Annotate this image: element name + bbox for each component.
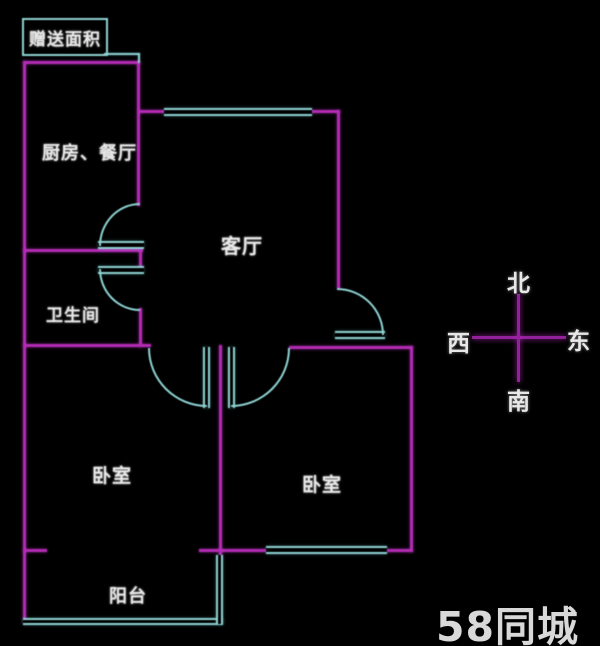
site-watermark-58tongcheng: 58同城: [436, 593, 579, 646]
wall-kitchen-top: [23, 61, 140, 64]
floorplan-drawing: 赠送面积 厨房、餐厅 客厅 卫生间 卧室 卧室 阳台: [0, 0, 600, 646]
window-living-room: [164, 108, 312, 116]
door-arc-bathroom: [99, 269, 140, 311]
wall-bedroom-left-bottom-stub-b: [199, 549, 222, 552]
wall-bath-right-lower: [139, 308, 142, 347]
balcony-outer-bottom: [23, 618, 223, 625]
door-arc-kitchen: [99, 203, 140, 246]
wall-bedroom-right-outer: [410, 346, 413, 552]
compass-axis-vertical: [517, 294, 520, 382]
compass-north-label: 北: [507, 264, 530, 298]
wall-center-partition: [219, 345, 222, 561]
room-label-living-room: 客厅: [221, 230, 263, 259]
room-label-balcony: 阳台: [109, 582, 147, 608]
wall-bath-bottom: [23, 344, 151, 347]
compass-east-label: 东: [567, 322, 590, 356]
wall-living-right: [337, 110, 340, 289]
door-arc-bedroom-left: [148, 348, 207, 407]
room-label-bedroom-right: 卧室: [302, 470, 342, 497]
wall-left-outer: [23, 61, 26, 623]
wall-kitchen-bath-divider: [23, 249, 143, 252]
bonus-area-label: 赠送面积: [29, 25, 101, 50]
wall-hall-bottom: [289, 346, 413, 349]
door-arc-bedroom-right: [231, 348, 290, 407]
bonus-box-connector-v: [138, 53, 140, 63]
room-label-kitchen-dining: 厨房、餐厅: [42, 139, 137, 165]
window-bedroom-right: [266, 546, 387, 554]
bonus-area-box: 赠送面积: [22, 18, 108, 56]
compass-south-label: 南: [507, 382, 530, 416]
room-label-bathroom: 卫生间: [46, 301, 100, 326]
balcony-outer-right: [216, 555, 223, 624]
floorplan-screenshot: 赠送面积 厨房、餐厅 客厅 卫生间 卧室 卧室 阳台 北 西 东 南: [0, 0, 600, 646]
room-label-bedroom-left: 卧室: [92, 461, 132, 488]
wall-kitchen-right: [137, 61, 140, 206]
compass-west-label: 西: [447, 324, 470, 358]
wall-bedroom-left-bottom-stub-a: [23, 549, 47, 552]
bonus-box-connector-h: [104, 53, 140, 55]
door-arc-entry: [337, 288, 384, 335]
